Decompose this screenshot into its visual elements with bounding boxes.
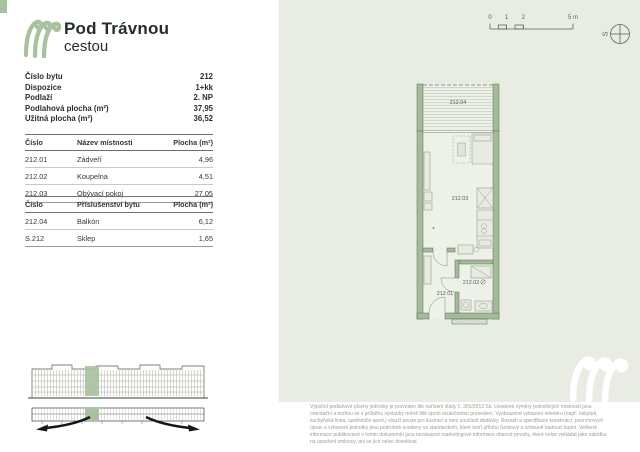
living-room-label: 212.03 bbox=[452, 196, 469, 202]
brand-waves-watermark-icon bbox=[567, 348, 639, 402]
building-footprint-drawing bbox=[28, 405, 208, 435]
info-row-floor: Podlaží 2. NP bbox=[25, 93, 213, 104]
col-number: Číslo bbox=[25, 197, 77, 213]
balcony-floor-hatch bbox=[423, 86, 493, 129]
apartment-floorplan: 212.04 212.03 212.02 212.01 bbox=[405, 80, 510, 330]
project-title: Pod Trávnou cestou bbox=[64, 19, 169, 55]
project-title-line1: Pod Trávnou bbox=[64, 19, 169, 38]
accessory-name: Sklep bbox=[77, 230, 165, 247]
unit-highlight bbox=[85, 366, 99, 396]
floorplan-panel: 0 1 2 5 m S bbox=[279, 0, 640, 402]
rooms-table: Číslo Název místnosti Plocha (m²) 212.01… bbox=[25, 134, 213, 203]
info-label: Podlahová plocha (m²) bbox=[25, 104, 109, 115]
small-table bbox=[458, 143, 466, 156]
table-row: 212.01 Zádveří 4,96 bbox=[25, 151, 213, 168]
info-row-unit-number: Číslo bytu 212 bbox=[25, 72, 213, 83]
bathroom-label: 212.02 bbox=[463, 280, 480, 286]
accessory-id: S.212 bbox=[25, 230, 77, 247]
compass-north-label: S bbox=[601, 31, 610, 36]
col-area: Plocha (m²) bbox=[165, 197, 213, 213]
col-accessory-name: Příslušenství bytu bbox=[77, 197, 165, 213]
floorplan-sheet: Pod Trávnou cestou Číslo bytu 212 Dispoz… bbox=[0, 0, 640, 452]
room-name: Zádveří bbox=[77, 151, 165, 168]
corner-accent-mark bbox=[0, 0, 7, 13]
rooms-table-header: Číslo Název místnosti Plocha (m²) bbox=[25, 135, 213, 151]
project-title-line2: cestou bbox=[64, 38, 169, 55]
footprint-texture bbox=[33, 409, 203, 420]
accessory-id: 212.04 bbox=[25, 213, 77, 230]
accessory-area: 1,65 bbox=[165, 230, 213, 247]
accessories-table: Číslo Příslušenství bytu Plocha (m²) 212… bbox=[25, 196, 213, 247]
north-compass-icon: S bbox=[597, 20, 635, 50]
info-row-usable-area: Užitná plocha (m²) 36,52 bbox=[25, 114, 213, 125]
scale-tick-5m: 5 m bbox=[568, 15, 578, 21]
table-row: S.212 Sklep 1,65 bbox=[25, 230, 213, 247]
room-id: 212.01 bbox=[25, 151, 77, 168]
col-area: Plocha (m²) bbox=[165, 135, 213, 151]
info-label: Číslo bytu bbox=[25, 72, 63, 83]
balcony-label: 212.04 bbox=[450, 100, 467, 106]
cabinet bbox=[424, 203, 432, 210]
table-row: 212.02 Koupelna 4,51 bbox=[25, 168, 213, 185]
legal-disclaimer-text: Výpočet podlahové plochy jednotky je pro… bbox=[310, 404, 608, 446]
table-row: 212.04 Balkón 6,12 bbox=[25, 213, 213, 230]
info-label: Užitná plocha (m²) bbox=[25, 114, 93, 125]
accessories-table-header: Číslo Příslušenství bytu Plocha (m²) bbox=[25, 197, 213, 213]
info-value: 2. NP bbox=[194, 93, 214, 104]
accessory-area: 6,12 bbox=[165, 213, 213, 230]
hall-closet bbox=[424, 256, 431, 284]
light-point bbox=[433, 227, 435, 229]
room-area: 4,96 bbox=[165, 151, 213, 168]
col-number: Číslo bbox=[25, 135, 77, 151]
cabinet bbox=[424, 192, 432, 201]
brand-waves-icon bbox=[23, 14, 63, 58]
bathroom-counter bbox=[475, 301, 492, 311]
sideboard bbox=[424, 152, 430, 190]
room-area: 4,51 bbox=[165, 168, 213, 185]
info-row-layout: Dispozice 1+kk bbox=[25, 83, 213, 94]
accessory-name: Balkón bbox=[77, 213, 165, 230]
info-label: Dispozice bbox=[25, 83, 61, 94]
building-section-drawing bbox=[28, 356, 208, 404]
col-room-name: Název místnosti bbox=[77, 135, 165, 151]
scale-bar: 0 1 2 5 m bbox=[485, 10, 585, 34]
table bbox=[458, 245, 473, 254]
hall-label: 212.01 bbox=[437, 291, 454, 297]
scale-tick-2: 2 bbox=[522, 15, 526, 21]
washing-machine bbox=[461, 300, 471, 310]
scale-tick-1: 1 bbox=[505, 15, 509, 21]
info-row-floor-area: Podlahová plocha (m²) 37,95 bbox=[25, 104, 213, 115]
info-value: 1+kk bbox=[195, 83, 213, 94]
scale-tick-0: 0 bbox=[488, 15, 492, 21]
info-value: 36,52 bbox=[193, 114, 213, 125]
apartment-info-list: Číslo bytu 212 Dispozice 1+kk Podlaží 2.… bbox=[25, 72, 213, 125]
exterior-wall-stub bbox=[452, 319, 487, 324]
bed-pillow bbox=[474, 135, 491, 141]
room-name: Koupelna bbox=[77, 168, 165, 185]
room-id: 212.02 bbox=[25, 168, 77, 185]
info-label: Podlaží bbox=[25, 93, 52, 104]
info-value: 212 bbox=[200, 72, 213, 83]
info-value: 37,95 bbox=[193, 104, 213, 115]
